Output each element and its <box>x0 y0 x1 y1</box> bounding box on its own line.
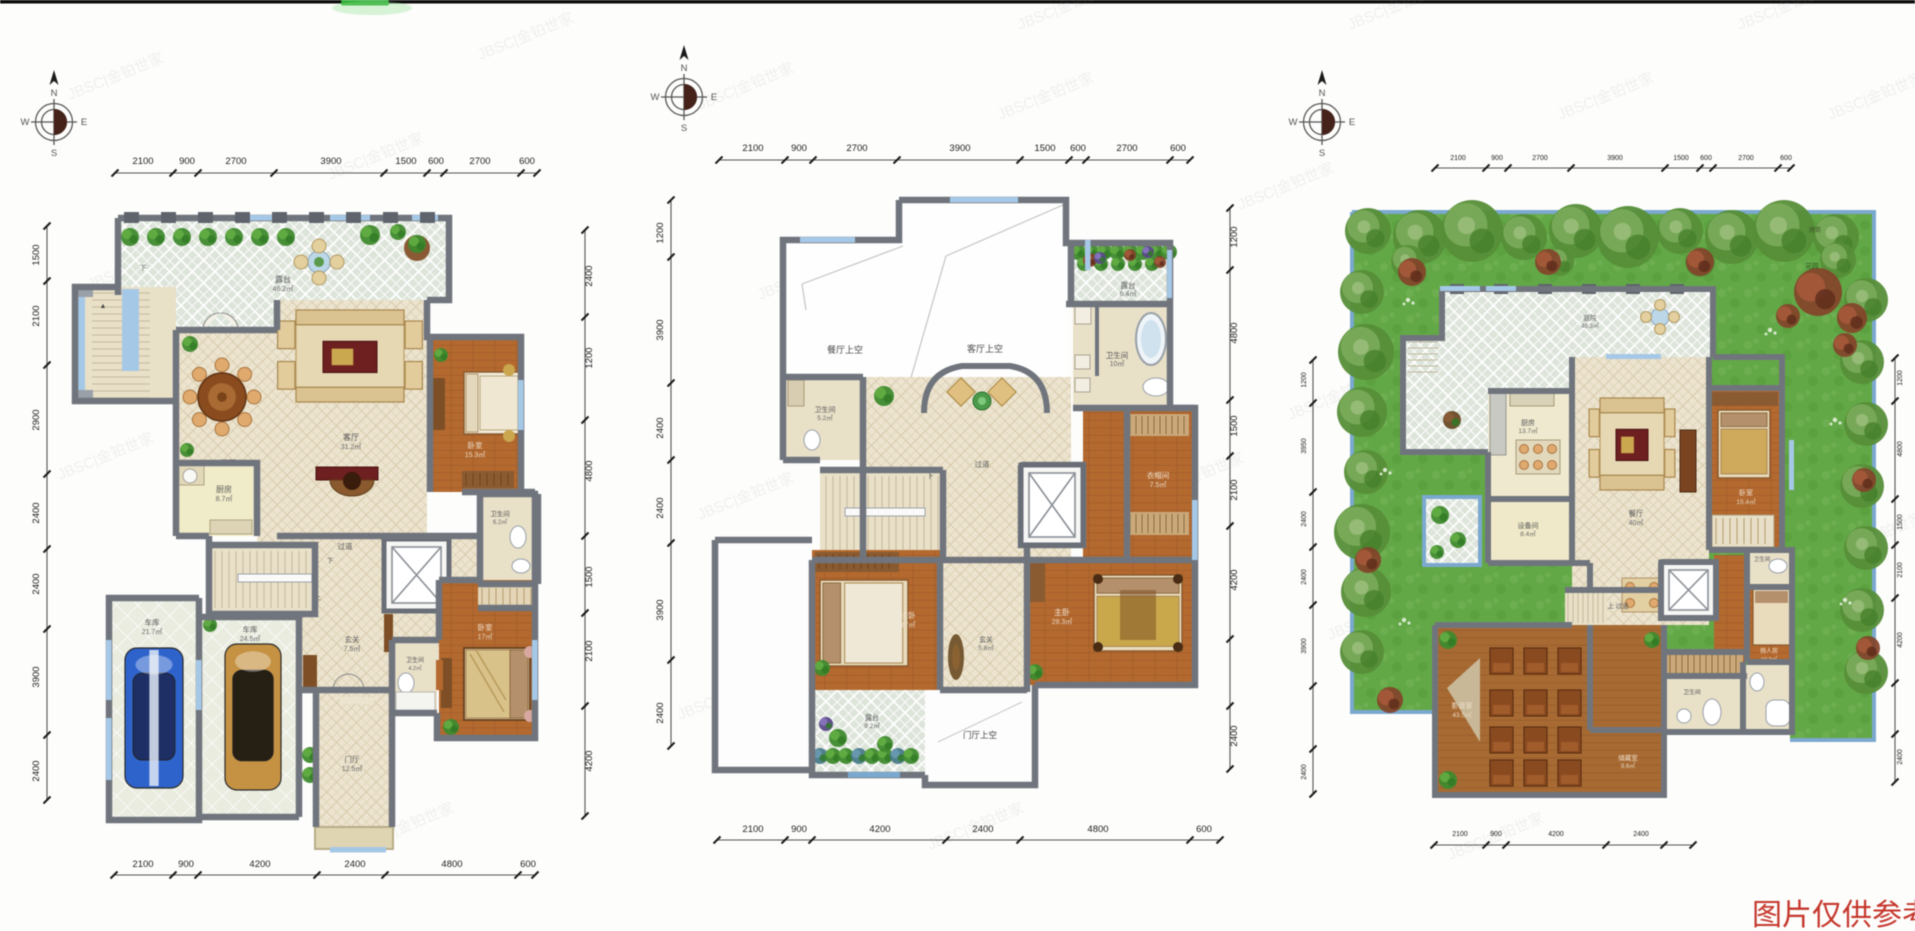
svg-text:N: N <box>1319 88 1326 99</box>
svg-text:2400: 2400 <box>655 417 666 438</box>
svg-text:4200: 4200 <box>1548 831 1564 838</box>
svg-text:2400: 2400 <box>344 859 365 870</box>
svg-text:1500: 1500 <box>395 156 416 167</box>
svg-text:2100: 2100 <box>742 824 763 835</box>
svg-text:4800: 4800 <box>584 460 595 481</box>
svg-text:下: 下 <box>327 558 333 565</box>
svg-text:46.2㎡: 46.2㎡ <box>273 285 294 293</box>
svg-text:过道: 过道 <box>338 541 353 551</box>
svg-text:1500: 1500 <box>1897 514 1904 530</box>
svg-text:下: 下 <box>140 264 147 272</box>
svg-text:600: 600 <box>519 156 535 167</box>
svg-text:4200: 4200 <box>1897 632 1904 648</box>
svg-text:S: S <box>1319 148 1325 159</box>
svg-text:S: S <box>681 123 687 134</box>
svg-text:3900: 3900 <box>320 156 341 167</box>
svg-text:2400: 2400 <box>972 824 993 835</box>
svg-text:43.5㎡: 43.5㎡ <box>1452 710 1472 719</box>
svg-text:卧室: 卧室 <box>478 622 493 632</box>
svg-text:1200: 1200 <box>1229 226 1240 247</box>
svg-text:卫生间: 卫生间 <box>1754 555 1771 563</box>
svg-text:2700: 2700 <box>1738 155 1754 162</box>
svg-text:门厅: 门厅 <box>345 755 360 764</box>
svg-text:客厅: 客厅 <box>343 432 359 442</box>
svg-text:1500: 1500 <box>31 244 42 265</box>
svg-text:2100: 2100 <box>31 305 42 326</box>
svg-text:3900: 3900 <box>655 599 666 620</box>
svg-text:1500: 1500 <box>584 566 595 587</box>
svg-text:8.4㎡: 8.4㎡ <box>1520 529 1536 538</box>
svg-text:600: 600 <box>1700 155 1712 162</box>
svg-text:餐厅上空: 餐厅上空 <box>827 344 863 355</box>
svg-text:900: 900 <box>178 859 194 870</box>
svg-text:玄关: 玄关 <box>979 635 993 644</box>
svg-text:3900: 3900 <box>1301 638 1308 654</box>
svg-text:1500: 1500 <box>1034 143 1055 154</box>
svg-text:影音室: 影音室 <box>1452 701 1473 710</box>
svg-text:卫生间: 卫生间 <box>490 509 510 518</box>
svg-text:4800: 4800 <box>1229 322 1240 343</box>
svg-text:17㎡: 17㎡ <box>901 621 916 629</box>
svg-text:门厅上空: 门厅上空 <box>963 730 997 740</box>
svg-text:12.5㎡: 12.5㎡ <box>342 765 363 773</box>
svg-text:900: 900 <box>791 143 807 154</box>
svg-text:3900: 3900 <box>1607 155 1623 162</box>
svg-text:2100: 2100 <box>584 640 595 661</box>
svg-text:庭院: 庭院 <box>1584 313 1598 322</box>
svg-text:4200: 4200 <box>249 859 270 870</box>
svg-text:图片仅供参考: 图片仅供参考 <box>1752 899 1915 931</box>
svg-text:3950: 3950 <box>1301 438 1308 454</box>
svg-text:6.2㎡: 6.2㎡ <box>493 518 507 526</box>
svg-text:1500: 1500 <box>1673 155 1689 162</box>
svg-text:W: W <box>1289 117 1298 128</box>
svg-text:4800: 4800 <box>1897 441 1904 457</box>
svg-text:客厅上空: 客厅上空 <box>967 343 1003 354</box>
svg-text:600: 600 <box>520 859 536 870</box>
svg-text:17㎡: 17㎡ <box>478 633 493 641</box>
svg-text:21.7㎡: 21.7㎡ <box>142 628 163 636</box>
svg-text:卧室: 卧室 <box>1739 488 1753 497</box>
svg-text:2700: 2700 <box>469 156 490 167</box>
svg-text:8.7㎡: 8.7㎡ <box>216 495 233 503</box>
svg-text:E: E <box>711 92 717 103</box>
svg-text:15.4㎡: 15.4㎡ <box>1736 497 1756 506</box>
svg-text:N: N <box>681 63 688 74</box>
svg-text:卧室: 卧室 <box>468 440 483 450</box>
svg-text:露台: 露台 <box>865 713 879 722</box>
svg-text:600: 600 <box>1196 824 1212 835</box>
svg-text:9.2㎡: 9.2㎡ <box>864 721 880 730</box>
svg-text:2100: 2100 <box>132 859 153 870</box>
svg-text:4800: 4800 <box>1087 824 1108 835</box>
svg-text:2700: 2700 <box>1116 143 1137 154</box>
svg-text:佣人房: 佣人房 <box>1760 647 1778 655</box>
svg-text:2400: 2400 <box>584 265 595 286</box>
svg-text:S: S <box>51 148 57 159</box>
svg-text:600: 600 <box>1070 143 1086 154</box>
svg-text:2400: 2400 <box>1897 749 1904 765</box>
svg-text:2400: 2400 <box>1229 725 1240 746</box>
svg-text:48.3㎡: 48.3㎡ <box>1581 322 1599 330</box>
svg-text:2700: 2700 <box>846 143 867 154</box>
svg-text:3900: 3900 <box>655 319 666 340</box>
svg-text:7.5㎡: 7.5㎡ <box>344 645 361 653</box>
svg-text:露台: 露台 <box>1121 280 1136 290</box>
svg-text:厨房: 厨房 <box>216 484 232 494</box>
svg-text:2400: 2400 <box>1301 764 1308 780</box>
svg-text:露台: 露台 <box>275 274 291 284</box>
svg-text:卫生间: 卫生间 <box>815 405 836 414</box>
svg-text:3900: 3900 <box>31 666 42 687</box>
svg-text:600: 600 <box>1780 155 1792 162</box>
svg-text:900: 900 <box>1491 155 1503 162</box>
svg-text:1200: 1200 <box>1301 372 1308 388</box>
svg-text:7.5㎡: 7.5㎡ <box>1150 481 1167 489</box>
svg-text:E: E <box>81 117 87 128</box>
svg-text:次卧: 次卧 <box>901 610 916 620</box>
svg-text:1200: 1200 <box>584 347 595 368</box>
svg-text:2100: 2100 <box>1450 155 1466 162</box>
svg-text:4.2㎡: 4.2㎡ <box>408 664 422 672</box>
svg-text:2400: 2400 <box>31 502 42 523</box>
svg-text:40㎡: 40㎡ <box>1629 519 1644 527</box>
svg-text:车库: 车库 <box>145 617 160 627</box>
svg-text:3900: 3900 <box>949 143 970 154</box>
svg-text:900: 900 <box>179 156 195 167</box>
svg-text:2100: 2100 <box>1897 562 1904 578</box>
svg-text:2900: 2900 <box>31 409 42 430</box>
svg-text:2100: 2100 <box>742 143 763 154</box>
svg-text:600: 600 <box>428 156 444 167</box>
svg-text:5.2㎡: 5.2㎡ <box>817 413 833 422</box>
svg-text:2100: 2100 <box>1229 479 1240 500</box>
svg-text:2700: 2700 <box>1532 155 1548 162</box>
svg-text:10㎡: 10㎡ <box>1110 360 1125 368</box>
svg-text:卫生间: 卫生间 <box>1106 350 1129 360</box>
svg-text:设备间: 设备间 <box>1518 521 1539 530</box>
svg-text:9.6㎡: 9.6㎡ <box>1621 762 1635 770</box>
svg-text:2400: 2400 <box>1633 831 1649 838</box>
svg-text:2400: 2400 <box>1301 511 1308 527</box>
svg-text:餐厅: 餐厅 <box>1629 509 1645 518</box>
svg-text:900: 900 <box>1490 831 1502 838</box>
svg-text:4200: 4200 <box>584 750 595 771</box>
svg-text:24.5㎡: 24.5㎡ <box>240 635 261 643</box>
svg-text:15.3㎡: 15.3㎡ <box>465 451 486 459</box>
svg-text:上 过道: 上 过道 <box>1607 601 1629 610</box>
svg-text:主卧: 主卧 <box>1054 607 1070 617</box>
svg-text:13.7㎡: 13.7㎡ <box>1518 426 1538 435</box>
svg-text:W: W <box>651 92 660 103</box>
svg-text:W: W <box>21 117 30 128</box>
svg-text:31.2㎡: 31.2㎡ <box>341 443 362 451</box>
svg-text:2400: 2400 <box>1301 569 1308 585</box>
svg-text:4200: 4200 <box>1229 569 1240 590</box>
svg-text:2100: 2100 <box>1452 831 1468 838</box>
svg-text:N: N <box>51 88 58 99</box>
svg-text:储藏室: 储藏室 <box>1618 753 1638 762</box>
svg-text:5.8㎡: 5.8㎡ <box>978 643 994 652</box>
svg-text:2400: 2400 <box>31 573 42 594</box>
svg-text:1200: 1200 <box>1897 370 1904 386</box>
svg-text:2100: 2100 <box>132 156 153 167</box>
svg-text:卫生间: 卫生间 <box>1683 688 1701 696</box>
svg-text:▲: ▲ <box>100 303 107 310</box>
svg-text:衣帽间: 衣帽间 <box>1147 470 1170 480</box>
svg-text:过道: 过道 <box>975 459 990 469</box>
svg-text:4200: 4200 <box>869 824 890 835</box>
svg-text:6.4㎡: 6.4㎡ <box>1120 290 1137 298</box>
svg-text:2700: 2700 <box>225 156 246 167</box>
svg-text:900: 900 <box>791 824 807 835</box>
svg-text:E: E <box>1349 117 1355 128</box>
svg-text:2400: 2400 <box>655 702 666 723</box>
svg-text:玄关: 玄关 <box>345 634 360 644</box>
svg-text:厨房: 厨房 <box>1521 418 1535 427</box>
svg-text:车库: 车库 <box>243 624 258 634</box>
svg-text:4800: 4800 <box>441 859 462 870</box>
svg-text:2400: 2400 <box>31 760 42 781</box>
svg-text:2400: 2400 <box>655 497 666 518</box>
svg-text:1500: 1500 <box>1229 415 1240 436</box>
svg-text:建筑: 建筑 <box>1809 226 1821 234</box>
svg-text:卫生间: 卫生间 <box>406 656 424 664</box>
svg-text:花园: 花园 <box>1806 261 1819 270</box>
svg-text:600: 600 <box>1170 143 1186 154</box>
svg-text:28.3㎡: 28.3㎡ <box>1052 618 1073 626</box>
svg-text:1200: 1200 <box>655 222 666 243</box>
